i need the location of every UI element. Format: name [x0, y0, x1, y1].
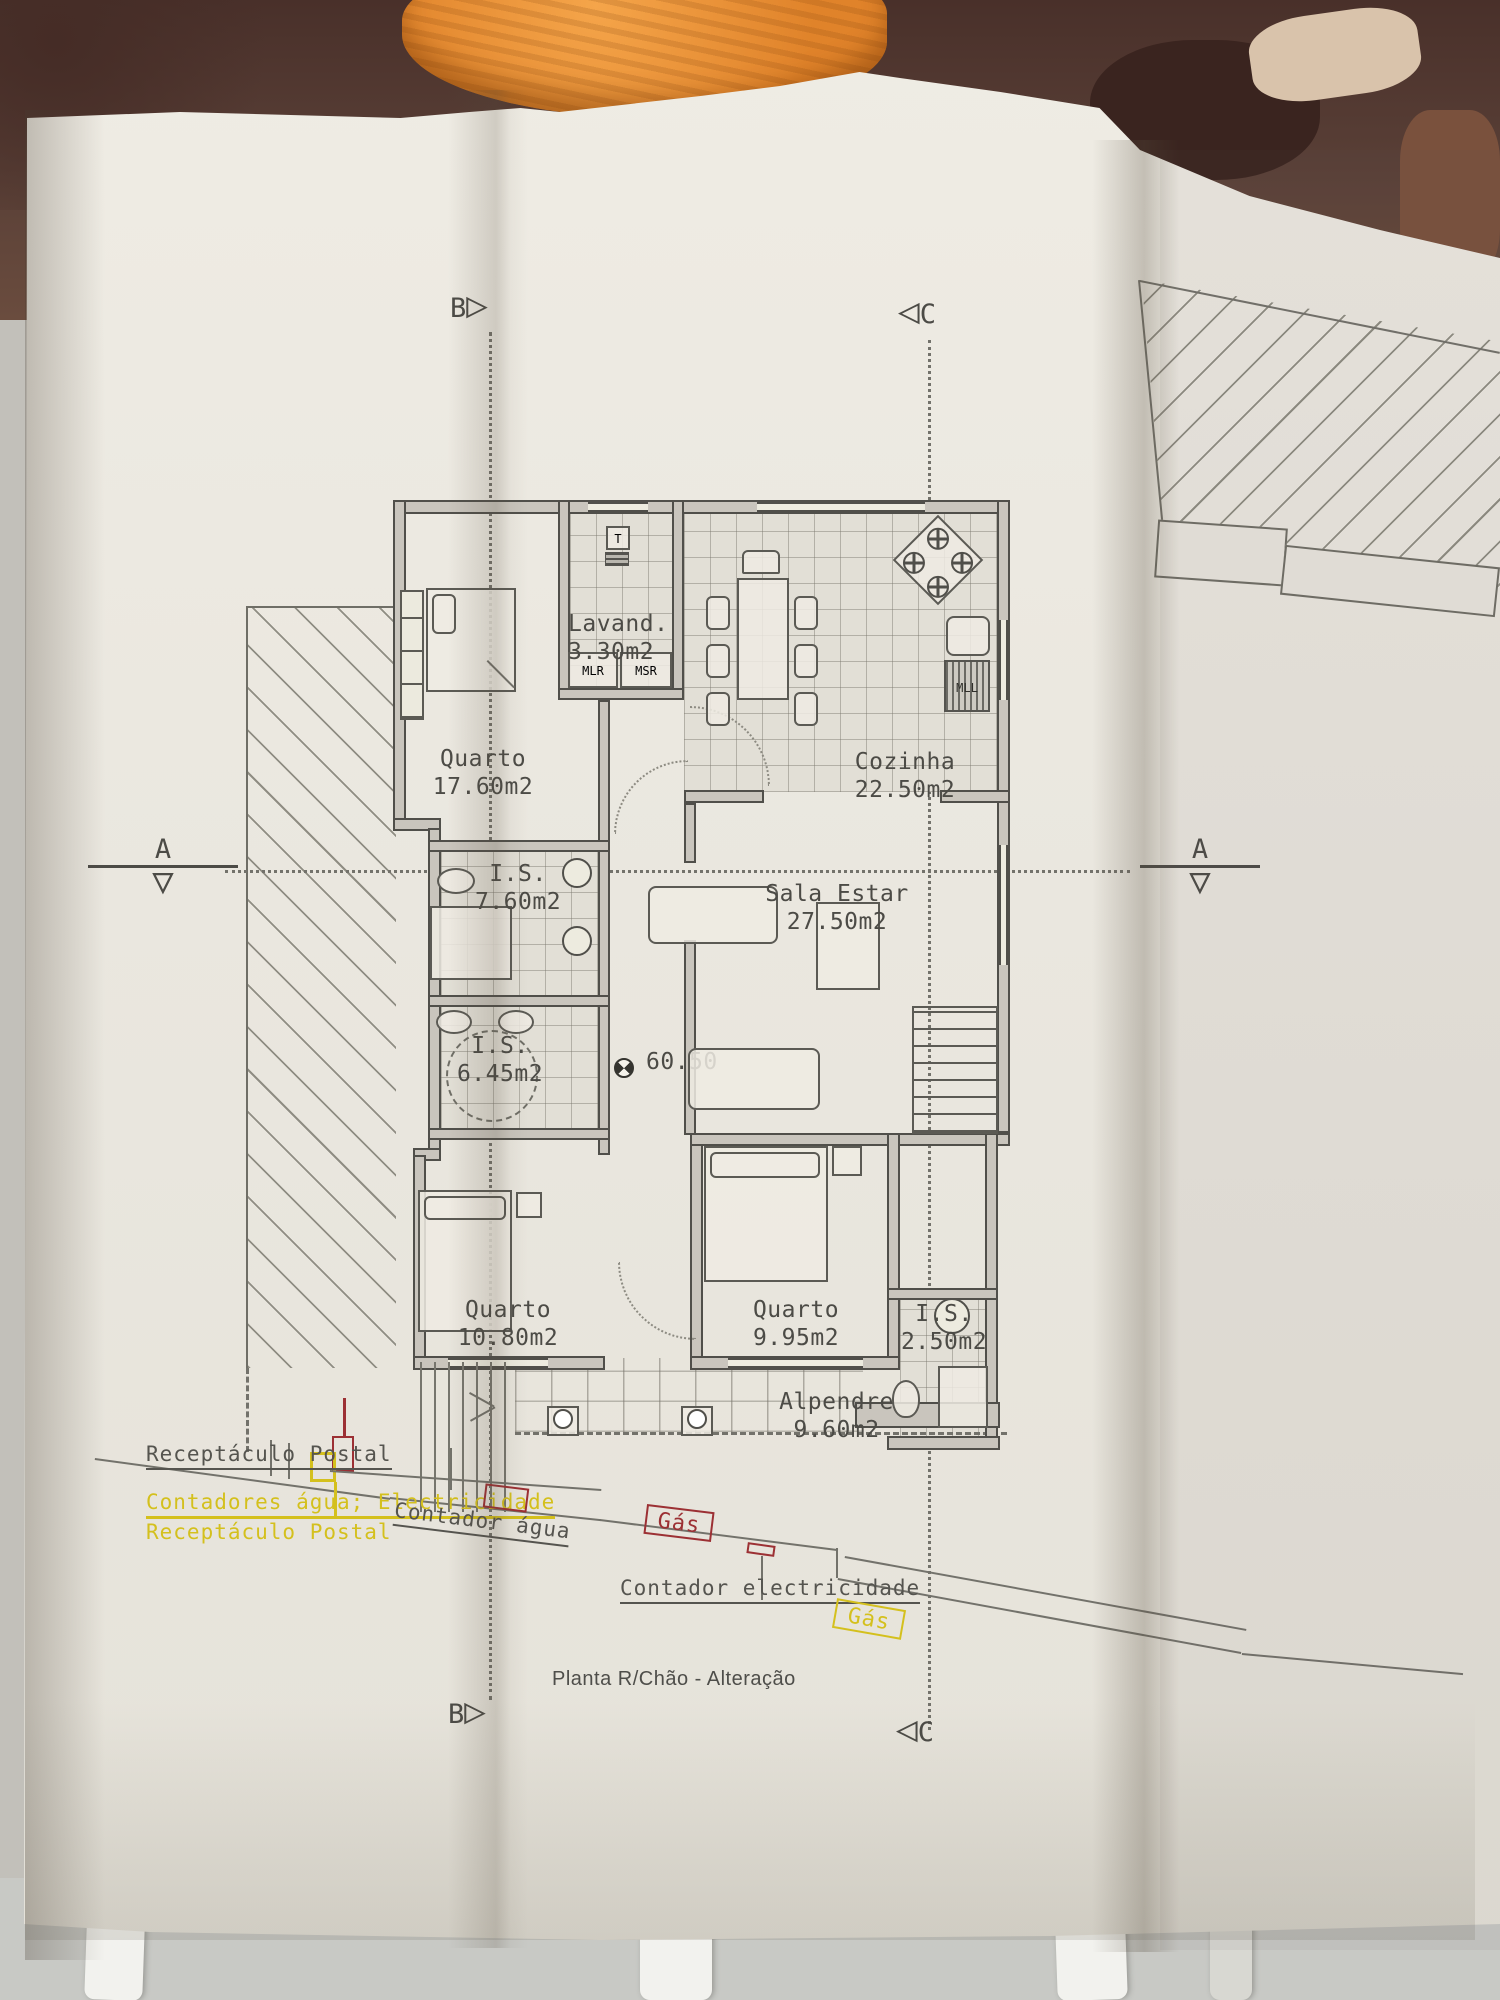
chair — [794, 644, 818, 678]
wardrobe — [400, 590, 424, 720]
msr-label: MSR — [635, 664, 657, 678]
room-label-quarto-1080: Quarto 10.80m2 — [448, 1296, 568, 1352]
annotation-receptaculo-postal: Receptáculo Postal — [146, 1442, 392, 1470]
wall — [598, 700, 610, 1155]
wall — [428, 1128, 610, 1140]
window — [757, 502, 925, 512]
room-label-is-645: I.S. 6.45m2 — [445, 1032, 555, 1088]
room-area: 9.60m2 — [793, 1417, 879, 1443]
stairs — [912, 1006, 998, 1134]
room-area: 3.30m2 — [568, 639, 654, 665]
room-area: 10.80m2 — [458, 1325, 558, 1351]
paper-sheet — [0, 0, 1500, 2000]
room-name: I.S. — [489, 861, 546, 887]
section-letter: B — [450, 293, 466, 324]
gas-label: Gás — [656, 1508, 701, 1538]
section-marker-c-bottom: ◁C — [896, 1716, 934, 1746]
window — [999, 620, 1008, 700]
room-label-is-250: I.S. 2.50m2 — [896, 1300, 992, 1356]
section-triangle-left-icon: ◁ — [898, 291, 920, 332]
annotation-contador-electricidade: Contador electricidade — [620, 1576, 920, 1604]
section-letter: C — [918, 1717, 934, 1748]
burner-icon — [922, 523, 953, 554]
dark-cabinet — [605, 552, 629, 566]
room-area: 9.95m2 — [753, 1325, 839, 1351]
annotation-receptaculo-postal-2: Receptáculo Postal — [146, 1520, 392, 1544]
boundary-dashed-left — [246, 1368, 249, 1452]
window — [728, 1358, 863, 1368]
chair — [706, 692, 730, 726]
pillow — [432, 594, 456, 634]
section-letter: B — [448, 1699, 464, 1730]
washbasin — [562, 926, 592, 956]
section-triangle-right-icon: ▷ — [466, 285, 488, 326]
chair — [794, 596, 818, 630]
section-triangle-down-icon: ▽ — [152, 861, 174, 902]
photo: T MLR MSR MLL 60.50 — [0, 0, 1500, 2000]
room-name: Lavand. — [568, 611, 668, 637]
annotation-text: Receptáculo Postal — [146, 1442, 392, 1466]
sofa — [688, 1048, 820, 1110]
window — [999, 845, 1008, 965]
sofa — [648, 886, 778, 944]
wall — [393, 500, 565, 514]
shower-tray — [430, 906, 512, 980]
alpendre-edge-dashed — [515, 1432, 1007, 1435]
nightstand — [832, 1146, 862, 1176]
room-label-is-760: I.S. 7.60m2 — [468, 860, 568, 916]
room-area: 6.45m2 — [457, 1061, 543, 1087]
room-name: Quarto — [465, 1297, 551, 1323]
room-label-sala-estar: Sala Estar 27.50m2 — [762, 880, 912, 936]
room-name: Sala Estar — [765, 881, 908, 907]
section-marker-a-right: A ▽ — [1140, 836, 1260, 897]
room-area: 22.50m2 — [855, 777, 955, 803]
room-area: 27.50m2 — [787, 909, 887, 935]
porch-column-core — [687, 1409, 707, 1429]
room-area: 17.60m2 — [433, 774, 533, 800]
room-name: I.S. — [471, 1033, 528, 1059]
hatched-existing-building-left — [246, 606, 396, 1368]
water-heater-box: T — [606, 526, 630, 550]
fence-post-line — [450, 1448, 452, 1490]
room-label-cozinha: Cozinha 22.50m2 — [840, 748, 970, 804]
annotation-text: Contador electricidade — [620, 1576, 920, 1600]
gas-label: Gás — [846, 1603, 892, 1635]
room-label-lavandaria: Lavand. 3.30m2 — [568, 610, 678, 666]
kitchen-sink — [946, 616, 990, 656]
drawing-title: Planta R/Chão - Alteração — [552, 1668, 796, 1691]
bidet — [498, 1010, 534, 1034]
room-name: I.S. — [915, 1301, 972, 1327]
shower-tray — [938, 1366, 988, 1428]
chair — [794, 692, 818, 726]
room-area: 7.60m2 — [475, 889, 561, 915]
wall — [558, 688, 684, 700]
section-marker-c-top: ◁C — [898, 298, 936, 328]
pillow — [710, 1152, 820, 1178]
wall — [428, 995, 610, 1007]
water-meter-red-box — [483, 1483, 530, 1512]
t-label: T — [614, 532, 621, 546]
section-letter: C — [920, 299, 936, 330]
section-triangle-left-icon: ◁ — [896, 1709, 918, 1750]
dining-table — [737, 578, 789, 700]
section-line-a — [225, 870, 1130, 873]
toilet — [436, 1010, 472, 1034]
room-label-quarto-1760: Quarto 17.60m2 — [408, 745, 558, 801]
section-marker-b-top: B▷ — [450, 292, 488, 322]
room-name: Quarto — [753, 1297, 839, 1323]
chair — [706, 644, 730, 678]
chair — [742, 550, 780, 574]
neighbour-wall-stub — [1154, 520, 1288, 587]
mlr-label: MLR — [582, 664, 604, 678]
wall — [997, 500, 1010, 1133]
nightstand — [516, 1192, 542, 1218]
room-area: 2.50m2 — [901, 1329, 987, 1355]
wall — [684, 790, 764, 803]
room-name: Cozinha — [855, 749, 955, 775]
section-triangle-right-icon: ▷ — [464, 1691, 486, 1732]
wall — [428, 840, 610, 852]
room-label-quarto-995: Quarto 9.95m2 — [736, 1296, 856, 1352]
porch-column-core — [553, 1409, 573, 1429]
site-boundary — [836, 1548, 838, 1578]
wall — [672, 500, 684, 700]
wall — [887, 1288, 998, 1300]
wall — [690, 1133, 1010, 1146]
section-triangle-down-icon: ▽ — [1189, 861, 1211, 902]
postal-box-red-stem — [343, 1398, 346, 1436]
dishwasher: MLL — [944, 660, 990, 712]
title-text: Planta R/Chão - Alteração — [552, 1668, 796, 1690]
room-label-alpendre: Alpendre 9.60m2 — [764, 1388, 909, 1444]
pillow — [424, 1196, 506, 1220]
annotation-text: Receptáculo Postal — [146, 1520, 392, 1544]
section-marker-b-bottom: B▷ — [448, 1698, 486, 1728]
chair — [706, 596, 730, 630]
mll-label: MLL — [956, 681, 978, 695]
room-name: Quarto — [440, 746, 526, 772]
section-marker-a-left: A ▽ — [88, 836, 238, 897]
window — [588, 502, 648, 512]
room-name: Alpendre — [779, 1389, 894, 1415]
